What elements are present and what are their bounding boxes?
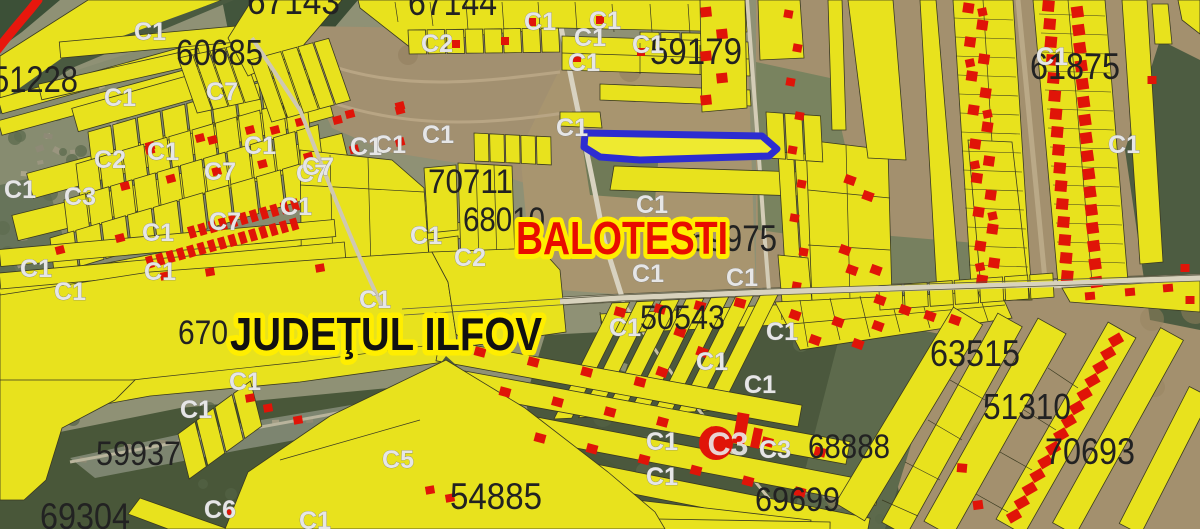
svg-text:C1: C1: [359, 286, 391, 314]
svg-text:C5: C5: [382, 446, 414, 474]
svg-text:C1: C1: [147, 138, 179, 166]
svg-text:C1: C1: [142, 219, 174, 247]
svg-text:C1: C1: [1108, 131, 1140, 159]
svg-text:C2: C2: [421, 30, 453, 58]
svg-text:C1: C1: [422, 121, 454, 149]
svg-text:C3: C3: [64, 183, 96, 211]
svg-text:C1: C1: [350, 133, 382, 161]
svg-text:C6: C6: [204, 496, 236, 524]
svg-text:51228: 51228: [0, 59, 78, 100]
svg-text:670: 670: [178, 314, 228, 352]
svg-text:C1: C1: [20, 255, 52, 283]
svg-text:C1: C1: [574, 24, 606, 52]
svg-text:69699: 69699: [755, 481, 840, 519]
svg-text:C1: C1: [244, 132, 276, 160]
svg-text:C1: C1: [632, 31, 664, 59]
svg-text:C1: C1: [4, 176, 36, 204]
svg-text:C7: C7: [204, 158, 236, 186]
svg-text:54885: 54885: [450, 476, 542, 517]
svg-text:C7: C7: [209, 208, 241, 236]
svg-text:60685: 60685: [176, 32, 263, 73]
svg-text:C2: C2: [94, 146, 126, 174]
svg-text:C2: C2: [454, 244, 486, 272]
svg-text:C1: C1: [54, 278, 86, 306]
svg-text:C3: C3: [708, 426, 749, 462]
svg-text:C1: C1: [568, 49, 600, 77]
svg-text:C1: C1: [280, 193, 312, 221]
svg-text:JUDEŢUL ILFOV: JUDEŢUL ILFOV: [230, 308, 542, 360]
svg-text:C1: C1: [636, 191, 668, 219]
svg-text:C7: C7: [206, 78, 238, 106]
svg-text:69304: 69304: [40, 496, 130, 529]
svg-text:67144: 67144: [408, 0, 497, 23]
svg-text:63515: 63515: [930, 333, 1020, 374]
svg-text:C1: C1: [144, 258, 176, 286]
svg-text:C1: C1: [766, 318, 798, 346]
svg-text:C1: C1: [299, 507, 331, 529]
svg-text:C7: C7: [302, 153, 334, 181]
svg-text:C1: C1: [180, 396, 212, 424]
svg-text:C1: C1: [632, 260, 664, 288]
svg-text:C1: C1: [524, 8, 556, 36]
svg-text:C1: C1: [134, 18, 166, 46]
svg-text:70711: 70711: [428, 163, 513, 201]
svg-text:C1: C1: [726, 264, 758, 292]
svg-text:C1: C1: [696, 348, 728, 376]
svg-text:50543: 50543: [640, 299, 725, 337]
svg-text:59937: 59937: [96, 435, 181, 473]
svg-text:C3: C3: [759, 436, 791, 464]
svg-text:C1: C1: [556, 114, 588, 142]
svg-text:C1: C1: [609, 314, 641, 342]
svg-text:C1: C1: [646, 463, 678, 491]
svg-text:BALOTESTI: BALOTESTI: [516, 212, 728, 264]
svg-text:51310: 51310: [983, 386, 1071, 427]
svg-text:C1: C1: [410, 222, 442, 250]
svg-text:C1: C1: [229, 368, 261, 396]
svg-text:C1: C1: [744, 371, 776, 399]
svg-text:70693: 70693: [1045, 431, 1135, 472]
svg-text:68888: 68888: [808, 428, 890, 466]
svg-text:C1: C1: [646, 428, 678, 456]
svg-text:67143: 67143: [247, 0, 340, 22]
svg-text:C1: C1: [104, 84, 136, 112]
svg-text:C1: C1: [1036, 43, 1068, 71]
